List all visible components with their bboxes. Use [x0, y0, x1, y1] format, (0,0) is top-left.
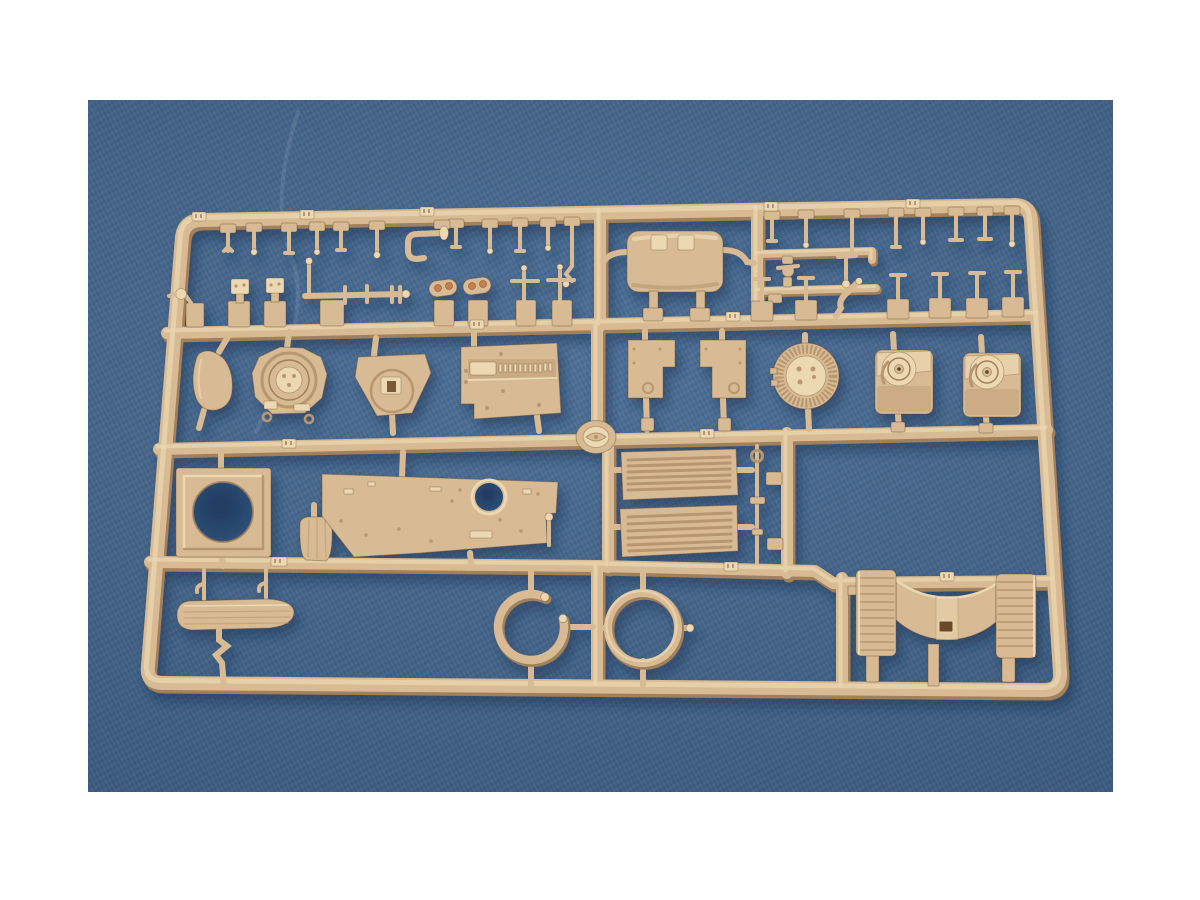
- gun-shield-part: [355, 338, 431, 433]
- fan-cover-part: [770, 335, 839, 429]
- hook-parts: [197, 569, 266, 599]
- muffler-part: [603, 231, 754, 321]
- curved-plate-part: [193, 335, 232, 428]
- rod-block-parts: [766, 472, 783, 550]
- hanging-pins-top-right: [764, 206, 1020, 251]
- final-drive-parts: [875, 334, 1021, 433]
- sprue-runner: [146, 199, 1062, 693]
- photo-area: [88, 100, 1113, 792]
- vent-panel-part: [461, 333, 561, 431]
- stowage-board-part: [177, 599, 294, 630]
- tow-ring-part: [601, 569, 694, 685]
- maker-medallion: [576, 421, 616, 454]
- torsion-bar-part: [305, 258, 410, 327]
- hatch-plate-part: [176, 452, 271, 566]
- engine-grille-parts: [612, 449, 752, 557]
- periscope-head-parts: [428, 276, 492, 326]
- fender-plate-parts: [628, 331, 746, 431]
- turret-ring-part: [252, 332, 327, 423]
- cleaning-rod-part: [750, 446, 765, 563]
- page: { "page": { "title": "Tan model-kit spru…: [0, 0, 1200, 900]
- knob-bracket-parts: [228, 278, 286, 327]
- deck-plate-part: [322, 452, 558, 562]
- sprue-photo-svg: [88, 100, 1113, 792]
- open-ring-part: [498, 569, 593, 685]
